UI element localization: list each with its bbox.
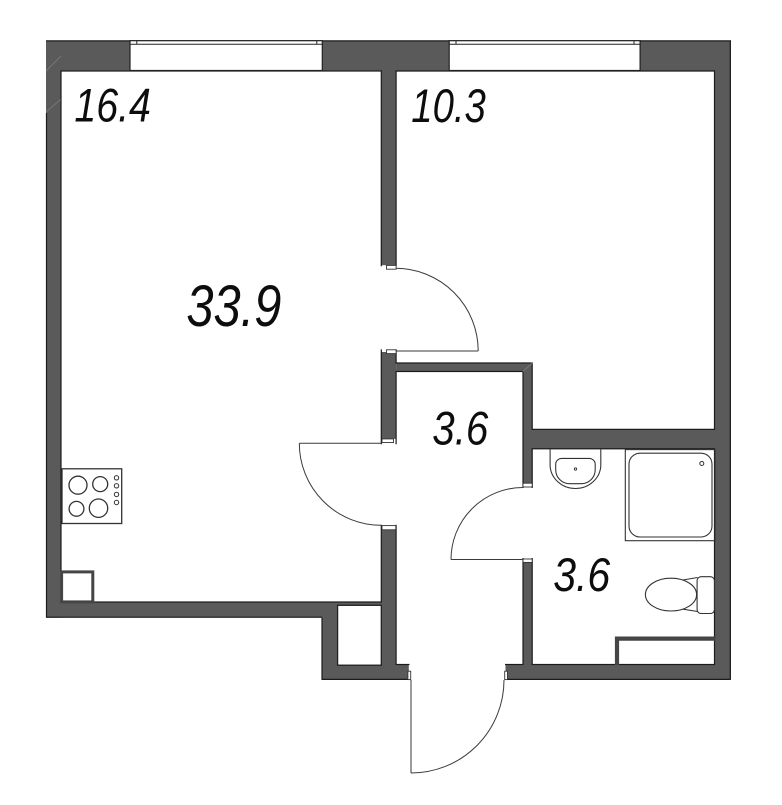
svg-text:16.4: 16.4	[74, 78, 150, 131]
svg-text:10.3: 10.3	[411, 79, 486, 132]
svg-text:3.6: 3.6	[432, 401, 489, 454]
svg-text:3.6: 3.6	[553, 548, 611, 601]
svg-text:33.9: 33.9	[186, 274, 281, 339]
